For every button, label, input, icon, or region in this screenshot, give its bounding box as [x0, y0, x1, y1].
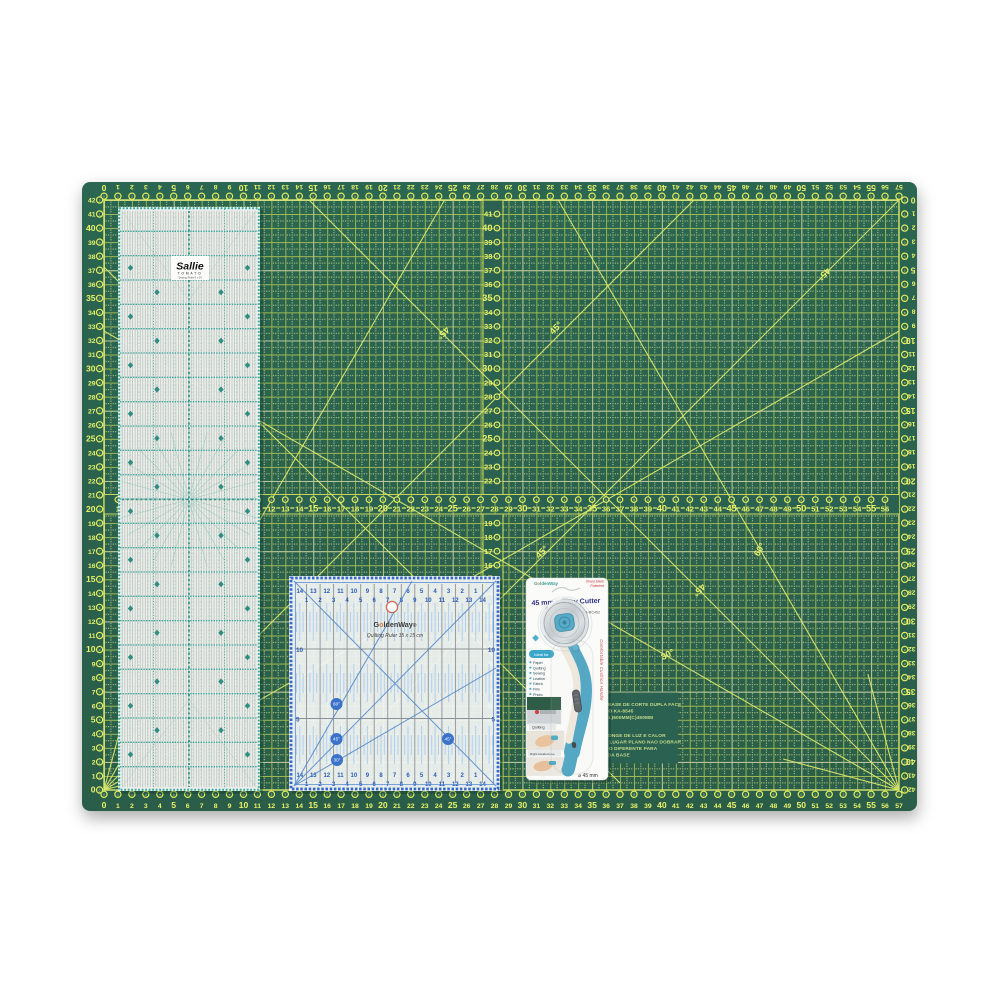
- svg-text:12: 12: [88, 619, 96, 626]
- svg-text:48: 48: [770, 183, 778, 190]
- svg-text:Paper: Paper: [533, 661, 544, 665]
- svg-text:37: 37: [616, 803, 624, 810]
- svg-text:42: 42: [908, 785, 916, 792]
- svg-text:14: 14: [479, 782, 486, 788]
- svg-text:Quilting: Quilting: [533, 666, 546, 670]
- svg-text:10: 10: [351, 589, 358, 595]
- svg-text:20: 20: [378, 504, 388, 514]
- svg-text:36: 36: [602, 803, 610, 810]
- svg-text:38: 38: [630, 803, 638, 810]
- svg-text:26: 26: [463, 183, 471, 190]
- svg-text:36: 36: [88, 282, 96, 289]
- svg-text:29: 29: [505, 803, 513, 810]
- svg-text:20: 20: [906, 476, 916, 486]
- svg-text:32: 32: [547, 803, 555, 810]
- svg-text:TOMATO: TOMATO: [178, 272, 203, 276]
- svg-text:24: 24: [435, 803, 443, 810]
- svg-text:22: 22: [908, 504, 916, 511]
- svg-text:0: 0: [102, 800, 107, 810]
- svg-text:2: 2: [130, 803, 134, 810]
- svg-text:14: 14: [296, 803, 304, 810]
- svg-text:14: 14: [908, 392, 916, 399]
- svg-text:21: 21: [393, 803, 401, 810]
- svg-text:4: 4: [158, 803, 162, 810]
- svg-text:30: 30: [517, 183, 527, 193]
- svg-text:4: 4: [158, 183, 162, 190]
- svg-text:19: 19: [365, 505, 373, 514]
- svg-text:45°: 45°: [445, 737, 452, 742]
- svg-text:13: 13: [310, 589, 317, 595]
- svg-text:Quilting Ruler 15 x 15 cm: Quilting Ruler 15 x 15 cm: [367, 633, 423, 639]
- svg-text:56: 56: [881, 505, 889, 514]
- svg-text:42: 42: [686, 505, 694, 514]
- svg-text:23: 23: [484, 463, 492, 472]
- svg-text:40: 40: [657, 800, 667, 810]
- svg-text:29: 29: [505, 183, 513, 190]
- svg-text:36: 36: [602, 183, 610, 190]
- svg-text:16: 16: [88, 563, 96, 570]
- svg-text:Ideal for: Ideal for: [534, 652, 549, 657]
- svg-text:36: 36: [908, 701, 916, 708]
- svg-text:10: 10: [351, 773, 358, 779]
- svg-text:GoldenWay: GoldenWay: [534, 581, 559, 586]
- svg-text:19: 19: [88, 521, 96, 528]
- svg-text:33: 33: [560, 505, 568, 514]
- svg-text:15: 15: [308, 183, 318, 193]
- svg-text:1: 1: [116, 183, 120, 190]
- svg-text:18: 18: [908, 448, 916, 455]
- svg-text:26: 26: [463, 803, 471, 810]
- svg-text:34: 34: [908, 673, 916, 680]
- svg-text:5: 5: [911, 266, 916, 276]
- svg-text:26: 26: [88, 423, 96, 430]
- svg-text:0: 0: [911, 195, 916, 205]
- svg-text:42: 42: [88, 198, 96, 205]
- svg-text:28: 28: [908, 589, 916, 596]
- svg-text:1: 1: [92, 774, 96, 781]
- svg-text:27: 27: [908, 575, 916, 582]
- svg-text:7: 7: [912, 294, 916, 301]
- svg-text:44: 44: [713, 505, 722, 514]
- svg-text:23: 23: [421, 505, 429, 514]
- svg-text:45: 45: [726, 504, 736, 514]
- svg-text:47: 47: [756, 803, 764, 810]
- svg-text:52: 52: [825, 803, 833, 810]
- svg-text:15: 15: [906, 406, 916, 416]
- svg-text:29: 29: [908, 603, 916, 610]
- svg-text:35: 35: [906, 687, 916, 697]
- svg-text:41: 41: [672, 505, 681, 514]
- svg-text:39: 39: [908, 743, 916, 750]
- svg-text:22: 22: [407, 803, 415, 810]
- svg-text:40: 40: [657, 183, 667, 193]
- svg-text:39: 39: [644, 803, 652, 810]
- svg-text:10: 10: [425, 782, 432, 788]
- svg-text:30: 30: [517, 504, 527, 514]
- svg-text:54: 54: [853, 183, 861, 190]
- svg-text:18: 18: [351, 803, 359, 810]
- svg-text:15: 15: [86, 574, 96, 584]
- svg-text:23: 23: [88, 465, 96, 472]
- svg-text:11: 11: [439, 598, 446, 604]
- svg-text:41: 41: [672, 183, 680, 190]
- svg-text:Patented: Patented: [590, 584, 604, 588]
- svg-text:34: 34: [574, 505, 583, 514]
- svg-text:17: 17: [337, 803, 345, 810]
- svg-text:20: 20: [378, 800, 388, 810]
- svg-text:30: 30: [86, 363, 96, 373]
- svg-text:8: 8: [214, 803, 218, 810]
- svg-text:31: 31: [532, 505, 541, 514]
- svg-text:32: 32: [908, 645, 916, 652]
- svg-text:52: 52: [825, 505, 833, 514]
- svg-text:40: 40: [906, 757, 916, 767]
- svg-text:11: 11: [337, 773, 344, 779]
- svg-text:27: 27: [484, 406, 492, 415]
- svg-text:5: 5: [296, 717, 300, 724]
- svg-text:22: 22: [407, 505, 415, 514]
- svg-text:37: 37: [484, 266, 492, 275]
- svg-text:18: 18: [484, 533, 492, 542]
- svg-text:24: 24: [908, 533, 916, 540]
- svg-text:13: 13: [466, 782, 473, 788]
- svg-text:29: 29: [484, 378, 492, 387]
- svg-text:GoldenWay®: GoldenWay®: [374, 620, 417, 629]
- svg-text:2: 2: [130, 183, 134, 190]
- svg-text:36: 36: [484, 280, 492, 289]
- svg-text:16: 16: [323, 803, 331, 810]
- svg-text:3: 3: [92, 746, 96, 753]
- svg-text:14: 14: [88, 591, 96, 598]
- svg-text:42: 42: [686, 803, 694, 810]
- svg-text:22: 22: [88, 479, 96, 486]
- svg-text:12: 12: [267, 183, 275, 190]
- svg-text:23: 23: [908, 518, 916, 525]
- svg-text:35: 35: [587, 183, 597, 193]
- svg-text:21: 21: [88, 493, 96, 500]
- svg-text:54: 54: [853, 803, 861, 810]
- svg-text:1: 1: [912, 209, 916, 216]
- svg-text:30°: 30°: [334, 758, 341, 763]
- svg-text:12: 12: [268, 803, 276, 810]
- svg-text:38: 38: [88, 254, 96, 261]
- svg-text:16: 16: [908, 420, 916, 427]
- svg-text:32: 32: [484, 336, 492, 345]
- svg-text:27: 27: [88, 408, 96, 415]
- svg-text:21: 21: [393, 183, 401, 190]
- svg-text:41: 41: [672, 803, 680, 810]
- svg-text:20: 20: [378, 183, 388, 193]
- svg-text:24: 24: [484, 449, 493, 458]
- svg-text:14: 14: [479, 598, 486, 604]
- svg-text:13: 13: [282, 803, 290, 810]
- svg-text:14: 14: [295, 505, 304, 514]
- svg-text:31: 31: [908, 631, 916, 638]
- svg-text:33: 33: [484, 322, 492, 331]
- svg-text:11: 11: [254, 183, 261, 190]
- svg-text:38: 38: [630, 505, 638, 514]
- svg-text:52: 52: [825, 183, 833, 190]
- svg-text:36: 36: [602, 505, 610, 514]
- svg-text:12: 12: [908, 364, 916, 371]
- svg-text:46: 46: [742, 803, 750, 810]
- svg-text:43: 43: [699, 505, 707, 514]
- svg-text:25: 25: [448, 504, 458, 514]
- svg-text:40: 40: [86, 223, 96, 233]
- svg-text:25: 25: [86, 434, 96, 444]
- svg-text:44: 44: [714, 183, 722, 190]
- svg-text:40: 40: [482, 223, 492, 233]
- svg-text:35: 35: [86, 293, 96, 303]
- svg-text:19: 19: [365, 183, 373, 190]
- svg-text:40: 40: [657, 504, 667, 514]
- svg-text:6: 6: [186, 183, 190, 190]
- svg-text:43: 43: [700, 183, 708, 190]
- svg-text:53: 53: [839, 183, 847, 190]
- svg-text:51: 51: [811, 183, 819, 190]
- svg-text:0: 0: [91, 785, 96, 795]
- svg-text:17: 17: [337, 183, 345, 190]
- svg-text:26: 26: [908, 561, 916, 568]
- svg-text:19: 19: [908, 462, 916, 469]
- svg-text:25: 25: [448, 800, 458, 810]
- svg-text:38: 38: [908, 729, 916, 736]
- svg-text:56: 56: [881, 803, 889, 810]
- svg-text:27: 27: [477, 803, 485, 810]
- svg-text:28: 28: [484, 392, 492, 401]
- svg-text:57: 57: [895, 183, 903, 190]
- svg-text:60°: 60°: [333, 702, 340, 707]
- svg-text:37: 37: [616, 183, 624, 190]
- svg-text:30: 30: [906, 617, 916, 627]
- svg-text:54: 54: [853, 505, 862, 514]
- svg-text:⌀ 45 mm: ⌀ 45 mm: [578, 773, 598, 779]
- svg-text:10: 10: [239, 800, 249, 810]
- svg-text:24: 24: [434, 505, 443, 514]
- svg-text:15: 15: [308, 504, 318, 514]
- svg-text:16: 16: [323, 505, 331, 514]
- svg-text:48: 48: [769, 505, 777, 514]
- svg-text:Fabric: Fabric: [533, 682, 543, 686]
- svg-text:28: 28: [491, 183, 499, 190]
- svg-text:34: 34: [574, 183, 582, 190]
- svg-text:49: 49: [783, 183, 791, 190]
- svg-text:Leather: Leather: [533, 677, 546, 681]
- svg-text:12: 12: [323, 773, 330, 779]
- svg-text:12: 12: [452, 782, 459, 788]
- svg-text:0: 0: [101, 183, 106, 193]
- svg-text:Photo: Photo: [533, 693, 543, 697]
- svg-text:10: 10: [488, 647, 496, 654]
- svg-text:13: 13: [88, 605, 96, 612]
- svg-text:2: 2: [912, 223, 916, 230]
- svg-text:51: 51: [812, 803, 820, 810]
- svg-text:24: 24: [88, 451, 96, 458]
- svg-text:11: 11: [254, 803, 261, 810]
- svg-text:17: 17: [337, 505, 345, 514]
- svg-text:38: 38: [630, 183, 638, 190]
- svg-text:34: 34: [574, 803, 582, 810]
- svg-text:30: 30: [482, 363, 492, 373]
- svg-text:28: 28: [490, 505, 498, 514]
- svg-text:11: 11: [908, 350, 915, 357]
- svg-text:13: 13: [281, 183, 289, 190]
- svg-text:18: 18: [88, 535, 96, 542]
- svg-text:46: 46: [742, 183, 750, 190]
- svg-text:19: 19: [484, 519, 492, 528]
- svg-text:3: 3: [912, 237, 916, 244]
- svg-text:23: 23: [421, 803, 429, 810]
- svg-text:21: 21: [393, 505, 402, 514]
- svg-text:6: 6: [186, 803, 190, 810]
- svg-text:10: 10: [425, 598, 432, 604]
- svg-text:31: 31: [484, 350, 493, 359]
- svg-text:13: 13: [281, 505, 289, 514]
- svg-text:5: 5: [91, 715, 96, 725]
- svg-text:25: 25: [906, 547, 916, 557]
- svg-text:51: 51: [811, 505, 820, 514]
- svg-text:10: 10: [239, 183, 249, 193]
- svg-text:7: 7: [92, 689, 96, 696]
- svg-text:39: 39: [88, 240, 96, 247]
- svg-text:49: 49: [783, 505, 791, 514]
- svg-text:32: 32: [546, 505, 554, 514]
- svg-text:20: 20: [86, 504, 96, 514]
- svg-text:12: 12: [323, 589, 330, 595]
- svg-text:57: 57: [895, 803, 903, 810]
- svg-text:11: 11: [88, 633, 95, 640]
- svg-text:10: 10: [296, 647, 304, 654]
- svg-text:Film: Film: [533, 688, 540, 692]
- svg-text:Sewing: Sewing: [533, 672, 545, 676]
- svg-text:2: 2: [92, 760, 96, 767]
- svg-text:27: 27: [477, 183, 485, 190]
- svg-text:32: 32: [88, 338, 96, 345]
- svg-text:24: 24: [435, 183, 443, 190]
- svg-text:41: 41: [908, 771, 916, 778]
- svg-text:33: 33: [908, 659, 916, 666]
- svg-text:26: 26: [462, 505, 470, 514]
- svg-text:25: 25: [448, 183, 458, 193]
- svg-text:6: 6: [912, 280, 916, 287]
- svg-text:50: 50: [796, 504, 806, 514]
- svg-text:53: 53: [839, 505, 847, 514]
- svg-text:46: 46: [741, 505, 749, 514]
- svg-text:33: 33: [88, 324, 96, 331]
- svg-text:38: 38: [484, 252, 492, 261]
- svg-text:16: 16: [484, 561, 492, 570]
- svg-text:50: 50: [796, 183, 806, 193]
- svg-text:34: 34: [484, 308, 493, 317]
- svg-text:39: 39: [644, 505, 652, 514]
- svg-text:28: 28: [491, 803, 499, 810]
- svg-text:19: 19: [365, 803, 373, 810]
- svg-text:30: 30: [518, 800, 528, 810]
- svg-text:9: 9: [227, 183, 231, 190]
- svg-text:12: 12: [267, 505, 275, 514]
- svg-text:22: 22: [484, 477, 492, 486]
- svg-text:21: 21: [908, 490, 916, 497]
- svg-text:3: 3: [144, 183, 148, 190]
- svg-text:3: 3: [144, 803, 148, 810]
- svg-text:9: 9: [912, 322, 916, 329]
- svg-text:10: 10: [906, 336, 916, 346]
- svg-text:45: 45: [727, 800, 737, 810]
- svg-text:41: 41: [484, 210, 493, 219]
- svg-text:Quilting: Quilting: [532, 726, 545, 730]
- svg-text:37: 37: [88, 268, 96, 275]
- svg-text:17: 17: [908, 434, 916, 441]
- svg-text:50: 50: [797, 800, 807, 810]
- svg-text:43: 43: [700, 803, 708, 810]
- svg-text:17: 17: [484, 547, 492, 556]
- svg-text:35: 35: [482, 293, 492, 303]
- svg-text:29: 29: [88, 380, 96, 387]
- svg-text:42: 42: [686, 183, 694, 190]
- svg-text:48: 48: [770, 803, 778, 810]
- svg-text:11: 11: [337, 589, 344, 595]
- svg-text:9: 9: [228, 803, 232, 810]
- svg-text:27: 27: [476, 505, 484, 514]
- svg-text:7: 7: [200, 803, 204, 810]
- svg-text:32: 32: [546, 183, 554, 190]
- svg-text:41: 41: [88, 212, 96, 219]
- svg-text:31: 31: [88, 352, 96, 359]
- svg-text:Sewing Ruler 4 x 24: Sewing Ruler 4 x 24: [178, 276, 202, 280]
- svg-text:47: 47: [755, 505, 763, 514]
- svg-text:13: 13: [908, 378, 916, 385]
- svg-text:16: 16: [323, 183, 331, 190]
- svg-text:53: 53: [839, 803, 847, 810]
- svg-text:33: 33: [560, 183, 568, 190]
- svg-text:31: 31: [533, 803, 541, 810]
- svg-text:35: 35: [587, 800, 597, 810]
- svg-text:35: 35: [587, 504, 597, 514]
- svg-text:11: 11: [439, 782, 446, 788]
- svg-text:4: 4: [92, 732, 96, 739]
- svg-text:8: 8: [912, 308, 916, 315]
- svg-text:8: 8: [92, 675, 96, 682]
- svg-text:47: 47: [756, 183, 764, 190]
- svg-text:33: 33: [561, 803, 569, 810]
- svg-text:31: 31: [532, 183, 540, 190]
- svg-text:22: 22: [407, 183, 415, 190]
- svg-text:45: 45: [727, 183, 737, 193]
- svg-text:56: 56: [881, 183, 889, 190]
- svg-text:37: 37: [616, 505, 624, 514]
- svg-text:14: 14: [295, 183, 303, 190]
- svg-text:12: 12: [452, 598, 459, 604]
- svg-text:EM LUGAR PLANO NAO DOBRAR: EM LUGAR PLANO NAO DOBRAR: [601, 740, 682, 746]
- svg-text:18: 18: [351, 505, 359, 514]
- svg-text:55: 55: [866, 800, 876, 810]
- svg-text:55: 55: [866, 504, 876, 514]
- svg-text:1: 1: [116, 803, 120, 810]
- svg-text:45°: 45°: [333, 737, 340, 742]
- svg-text:44: 44: [714, 803, 722, 810]
- svg-text:39: 39: [484, 238, 492, 247]
- svg-text:7: 7: [199, 183, 203, 190]
- svg-text:9: 9: [92, 661, 96, 668]
- svg-text:34: 34: [88, 310, 96, 317]
- svg-text:39: 39: [644, 183, 652, 190]
- svg-text:55: 55: [866, 183, 876, 193]
- svg-text:37: 37: [908, 715, 916, 722]
- svg-text:10: 10: [86, 644, 96, 654]
- svg-text:13: 13: [466, 598, 473, 604]
- svg-text:A BASE DE CORTE DUPLA FACE: A BASE DE CORTE DUPLA FACE: [603, 702, 682, 708]
- svg-text:18: 18: [351, 183, 359, 190]
